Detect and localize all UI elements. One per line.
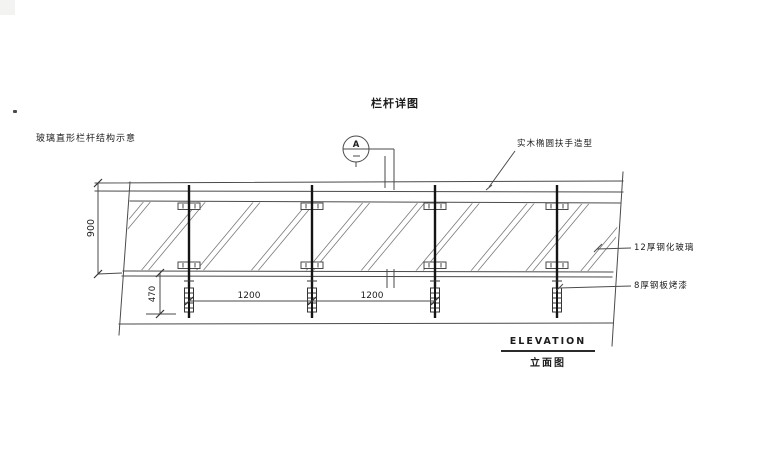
- drawing-title: 栏杆详图: [350, 95, 440, 111]
- leader-lines: [486, 151, 631, 291]
- left-note: 玻璃直形栏杆结构示意: [36, 131, 136, 144]
- dim-900: 900: [86, 219, 97, 237]
- glass-hatch: [30, 200, 702, 272]
- drawing-sheet: 栏杆详图 玻璃直形栏杆结构示意 实木椭圆扶手造型 12厚钢化玻璃 8厚钢板烤漆 …: [0, 0, 760, 457]
- detail-callout-a: [343, 136, 394, 288]
- caption-elevation-en: ELEVATION: [502, 336, 594, 347]
- callout-letter: A: [353, 140, 360, 150]
- dim-1200-a: 1200: [238, 291, 261, 301]
- caption-underline: [501, 350, 595, 352]
- railing-outline: [95, 172, 623, 346]
- caption-elevation-zh: 立面图: [502, 354, 594, 369]
- label-tempered-glass: 12厚钢化玻璃: [634, 241, 694, 253]
- scan-artifact: [0, 0, 15, 15]
- post: [424, 185, 446, 318]
- label-steel-plate: 8厚钢板烤漆: [634, 279, 688, 291]
- post: [178, 185, 200, 318]
- dimension-ticks: [94, 179, 439, 318]
- post: [301, 185, 323, 318]
- stray-mark: [13, 110, 17, 113]
- dim-470: 470: [148, 286, 158, 302]
- dim-1200-b: 1200: [361, 291, 384, 301]
- elevation-drawing: 900 470 1200 1200 A: [0, 0, 760, 457]
- label-wood-handrail: 实木椭圆扶手造型: [517, 137, 593, 149]
